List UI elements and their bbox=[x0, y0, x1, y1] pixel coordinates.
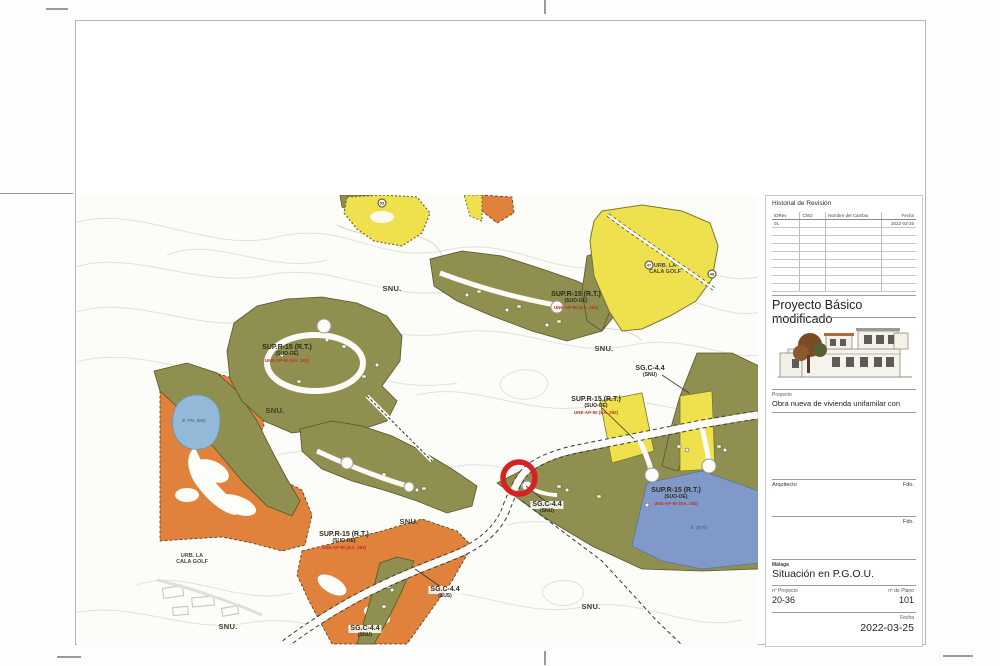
revision-cell bbox=[799, 236, 825, 243]
revision-cell bbox=[881, 244, 916, 251]
revision-cell bbox=[799, 284, 825, 291]
revision-cell bbox=[881, 252, 916, 259]
revision-table-row bbox=[772, 252, 916, 260]
revision-cell bbox=[772, 276, 799, 283]
building-outlines bbox=[157, 580, 262, 616]
revision-cell bbox=[825, 244, 881, 251]
revision-cell bbox=[881, 276, 916, 283]
revision-cell: 01 bbox=[772, 220, 799, 227]
revision-table-row bbox=[772, 276, 916, 284]
zoning-map-canvas bbox=[77, 195, 758, 645]
crop-mark bbox=[46, 8, 68, 10]
divider bbox=[772, 317, 916, 318]
divider bbox=[772, 585, 916, 586]
divider bbox=[772, 295, 916, 296]
revision-cell bbox=[772, 228, 799, 235]
sheet-title: Situación en P.G.O.U. bbox=[772, 568, 874, 580]
divider bbox=[772, 479, 916, 480]
proyecto-description: Obra nueva de vivienda unifamilar con bbox=[772, 399, 900, 408]
revision-cell bbox=[825, 276, 881, 283]
parcel-number-marker: 53 bbox=[378, 199, 387, 208]
parcel-number-marker: 47 bbox=[645, 261, 654, 270]
revision-cell bbox=[825, 260, 881, 267]
pond bbox=[173, 395, 221, 449]
revision-cell bbox=[772, 268, 799, 275]
revision-cell bbox=[799, 252, 825, 259]
arquitecto-label: Arquitecto bbox=[772, 482, 797, 488]
revision-table-row bbox=[772, 268, 916, 276]
revision-col-header: Nombre del Cambio bbox=[825, 212, 881, 219]
divider bbox=[772, 412, 916, 413]
revision-cell bbox=[772, 236, 799, 243]
num-plano-value: 101 bbox=[899, 595, 914, 605]
house-elevation-image bbox=[774, 323, 916, 383]
firma-label: Fdo. bbox=[903, 519, 914, 525]
num-proyecto-label: nº Proyecto bbox=[772, 588, 798, 594]
revision-cell bbox=[825, 228, 881, 235]
revision-cell bbox=[825, 268, 881, 275]
crop-mark bbox=[57, 656, 81, 658]
drawing-sheet: SNU.SNU.SNU.SNU.SNU.SNU.SUP.R-15 (R.T.)(… bbox=[75, 20, 926, 645]
plan-sheet-page: SNU.SNU.SNU.SNU.SNU.SNU.SUP.R-15 (R.T.)(… bbox=[0, 0, 1000, 666]
fecha-label: Fecha bbox=[900, 615, 914, 621]
revision-cell bbox=[825, 220, 881, 227]
revision-table-row bbox=[772, 228, 916, 236]
crop-mark bbox=[544, 0, 546, 14]
revision-col-header: IDRev bbox=[772, 212, 799, 219]
parcel-number-marker: 48 bbox=[708, 270, 717, 279]
title-block: Historial de Revisión IDRevChIDNombre de… bbox=[765, 195, 923, 647]
revision-history-title: Historial de Revisión bbox=[772, 200, 831, 207]
project-phase-title: Proyecto Básico modificado bbox=[772, 298, 922, 326]
revision-cell bbox=[881, 284, 916, 291]
firma-label: Fdo. bbox=[903, 482, 914, 488]
num-proyecto-value: 20-36 bbox=[772, 595, 795, 605]
revision-cell: 2022-03-25 bbox=[881, 220, 916, 227]
divider bbox=[772, 559, 916, 560]
revision-table-row bbox=[772, 284, 916, 292]
crop-mark bbox=[943, 655, 973, 657]
zoning-map: SNU.SNU.SNU.SNU.SNU.SNU.SUP.R-15 (R.T.)(… bbox=[77, 195, 758, 645]
blue-parcel bbox=[632, 471, 758, 569]
revision-cell bbox=[881, 236, 916, 243]
revision-cell bbox=[799, 260, 825, 267]
revision-cell bbox=[799, 244, 825, 251]
revision-table-row bbox=[772, 236, 916, 244]
revision-cell bbox=[881, 260, 916, 267]
num-plano-label: nº de Plano bbox=[888, 588, 914, 594]
divider bbox=[772, 389, 916, 390]
revision-cell bbox=[772, 252, 799, 259]
revision-cell bbox=[772, 260, 799, 267]
divider bbox=[772, 516, 916, 517]
revision-table: IDRevChIDNombre del CambioFecha012022-03… bbox=[772, 212, 916, 292]
fecha-value: 2022-03-25 bbox=[860, 622, 914, 634]
revision-cell bbox=[799, 228, 825, 235]
revision-table-row: 012022-03-25 bbox=[772, 220, 916, 228]
revision-cell bbox=[799, 276, 825, 283]
revision-cell bbox=[799, 268, 825, 275]
revision-table-header: IDRevChIDNombre del CambioFecha bbox=[772, 212, 916, 220]
crop-mark bbox=[544, 651, 546, 665]
revision-cell bbox=[825, 284, 881, 291]
revision-cell bbox=[881, 228, 916, 235]
revision-cell bbox=[881, 268, 916, 275]
crop-mark bbox=[0, 193, 73, 194]
revision-cell bbox=[772, 244, 799, 251]
revision-cell bbox=[825, 252, 881, 259]
divider bbox=[772, 612, 916, 613]
proyecto-label: Proyecto bbox=[772, 392, 792, 398]
revision-cell bbox=[799, 220, 825, 227]
revision-table-row bbox=[772, 260, 916, 268]
revision-table-row bbox=[772, 244, 916, 252]
revision-cell bbox=[825, 236, 881, 243]
revision-cell bbox=[772, 284, 799, 291]
revision-col-header: Fecha bbox=[881, 212, 916, 219]
revision-col-header: ChID bbox=[799, 212, 825, 219]
